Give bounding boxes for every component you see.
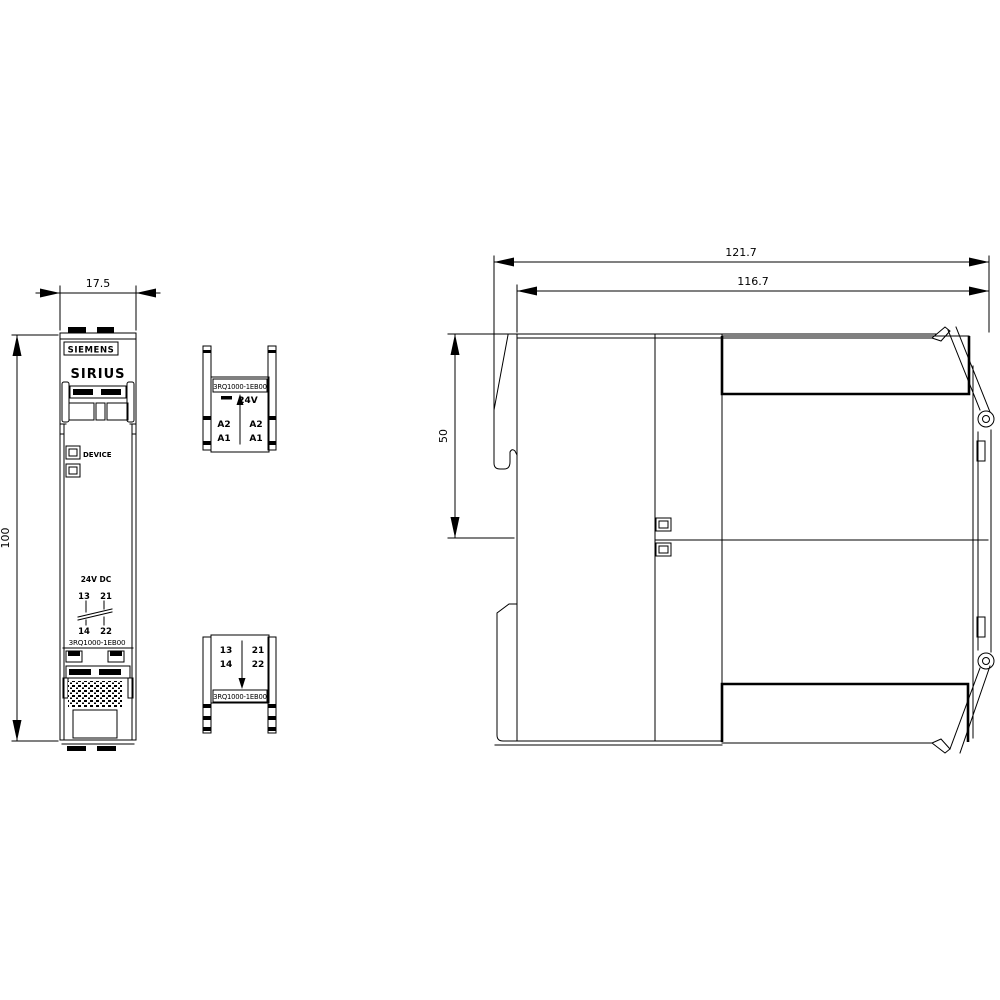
- dimension-depth-upper-label: 50: [437, 429, 450, 443]
- front-top-tab-right: [97, 327, 114, 333]
- front-hook: [494, 335, 517, 469]
- down-arrow: [239, 678, 246, 689]
- bottom-terminal-view: 13 21 14 22 3RQ1000-1EB00: [203, 635, 276, 733]
- supply-label: 24V DC: [81, 575, 112, 584]
- dimension-depth-total: 121.7: [494, 246, 989, 410]
- side-view: [494, 327, 994, 753]
- side-clip-upper: [656, 518, 671, 531]
- front-foot-left: [67, 746, 86, 751]
- dimension-depth-housing: 116.7: [517, 275, 989, 332]
- contact-symbol: [78, 601, 112, 625]
- dimension-height-label: 100: [0, 528, 12, 549]
- dimension-depth-housing-label: 116.7: [737, 275, 769, 288]
- brand-label: SIEMENS: [68, 346, 115, 356]
- bottom-terminal-13: 13: [220, 646, 233, 656]
- bottom-view-order-number: 3RQ1000-1EB00: [213, 693, 266, 701]
- terminal-a2-left: A2: [217, 420, 230, 430]
- dimension-width: 17.5: [36, 277, 160, 330]
- terminal-a2-right: A2: [249, 420, 262, 430]
- bottom-terminal-21: 21: [252, 646, 265, 656]
- top-view-clip-left: [203, 346, 211, 450]
- bottom-terminal-22: 22: [252, 660, 265, 670]
- fineprint-label: [68, 681, 122, 707]
- lower-terminal-block: [722, 684, 968, 742]
- lower-front-block: [497, 604, 517, 741]
- latch-pivot-upper: [978, 411, 994, 427]
- front-view: SIEMENS SIRIUS DEVICE 24V DC 13 21: [60, 327, 136, 751]
- device-led: [66, 446, 80, 459]
- dimension-depth-total-label: 121.7: [725, 246, 757, 259]
- terminal-a1-right: A1: [249, 434, 262, 444]
- front-terminal-14: 14: [78, 627, 90, 637]
- front-foot-right: [97, 746, 116, 751]
- second-led: [66, 464, 80, 477]
- front-terminal-21: 21: [100, 592, 112, 602]
- front-terminal-22: 22: [100, 627, 112, 637]
- bottom-rear-tip: [932, 739, 950, 753]
- front-top-tab-left: [68, 327, 86, 333]
- family-label: SIRIUS: [71, 367, 126, 382]
- side-clip-lower: [656, 543, 671, 556]
- blank-label-field: [73, 710, 117, 738]
- front-order-number: 3RQ1000-1EB00: [69, 638, 126, 647]
- bottom-terminal-14: 14: [220, 660, 233, 670]
- dc-symbol: [221, 396, 232, 400]
- top-terminal-view: 3RQ1000-1EB00 24V A2 A2 A1 A1: [203, 346, 276, 452]
- dimensional-drawing: SIEMENS SIRIUS DEVICE 24V DC 13 21: [0, 0, 1000, 1000]
- front-housing-outline: [60, 333, 136, 740]
- dimension-height: 100: [0, 335, 58, 741]
- latch-pivot-lower: [978, 653, 994, 669]
- upper-terminal-block: [722, 336, 969, 394]
- dimensional-drawing-page: SIEMENS SIRIUS DEVICE 24V DC 13 21: [0, 0, 1000, 1000]
- front-terminal-13: 13: [78, 592, 90, 602]
- dimension-width-label: 17.5: [86, 277, 111, 290]
- terminal-a1-left: A1: [217, 434, 230, 444]
- dimension-depth-upper: 50: [437, 334, 516, 538]
- top-view-order-number: 3RQ1000-1EB00: [213, 383, 266, 391]
- device-led-label: DEVICE: [83, 451, 112, 459]
